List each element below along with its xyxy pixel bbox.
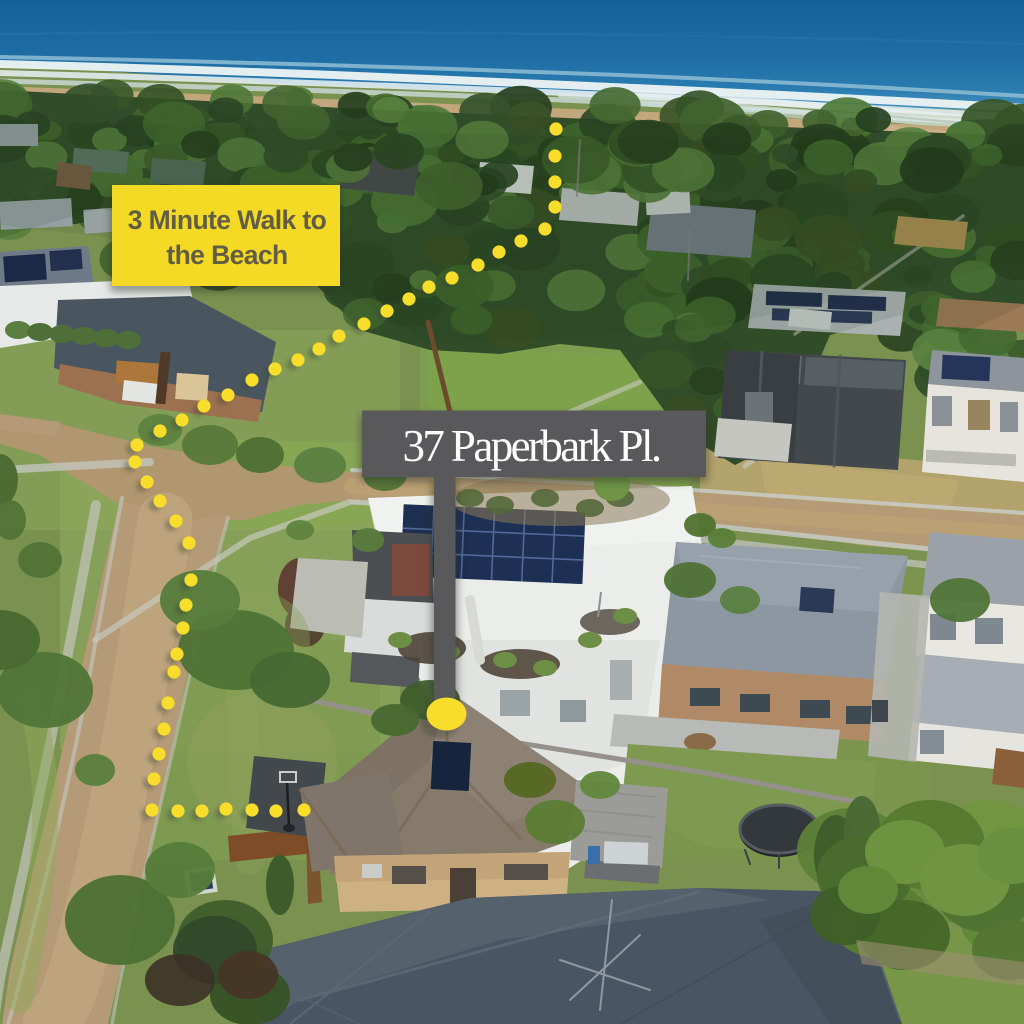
svg-text:the Beach: the Beach: [166, 240, 287, 270]
svg-text:37 Paperbark Pl.: 37 Paperbark Pl.: [402, 421, 659, 471]
svg-text:3 Minute Walk to: 3 Minute Walk to: [128, 205, 327, 235]
